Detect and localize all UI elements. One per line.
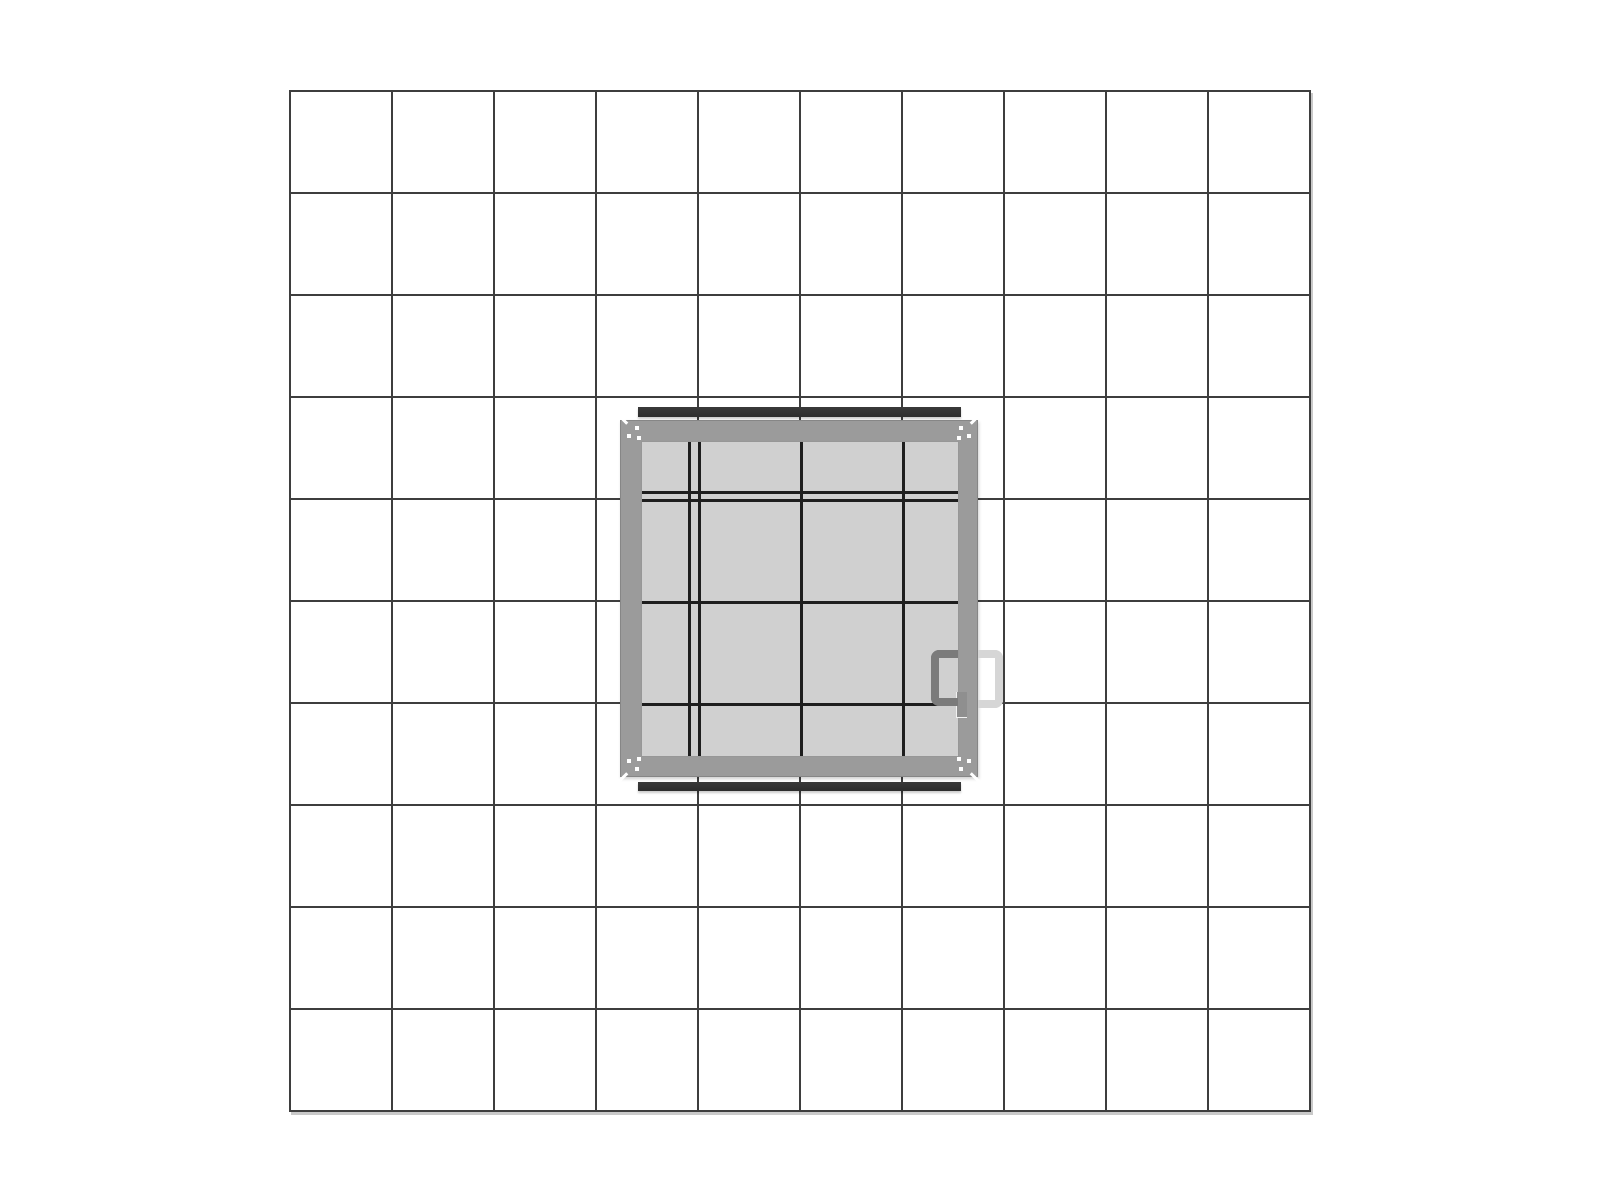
corner-fastener-marks-top-right	[952, 422, 976, 446]
fastener-dot	[959, 426, 963, 430]
fastener-dot	[637, 757, 641, 761]
panel-frame	[620, 420, 978, 777]
hatch-panel	[620, 420, 978, 777]
corner-fastener-marks-bottom-right	[952, 751, 976, 775]
fastener-dot	[627, 759, 631, 763]
fastener-dot	[635, 426, 639, 430]
fastener-dot	[967, 434, 971, 438]
corner-fastener-marks-top-left	[622, 422, 646, 446]
fastener-dot	[637, 436, 641, 440]
panel-glass	[641, 441, 959, 757]
fastener-dot	[957, 436, 961, 440]
fastener-dot	[627, 434, 631, 438]
inner-handle	[931, 650, 958, 706]
fastener-dot	[957, 757, 961, 761]
flange-bar-bottom	[638, 782, 961, 791]
fastener-dot	[967, 759, 971, 763]
drawing-canvas	[0, 0, 1600, 1200]
fastener-dot	[635, 767, 639, 771]
corner-fastener-marks-bottom-left	[622, 751, 646, 775]
outer-handle-ghost	[978, 650, 1003, 708]
flange-bar-top	[638, 407, 961, 417]
fastener-dot	[959, 767, 963, 771]
